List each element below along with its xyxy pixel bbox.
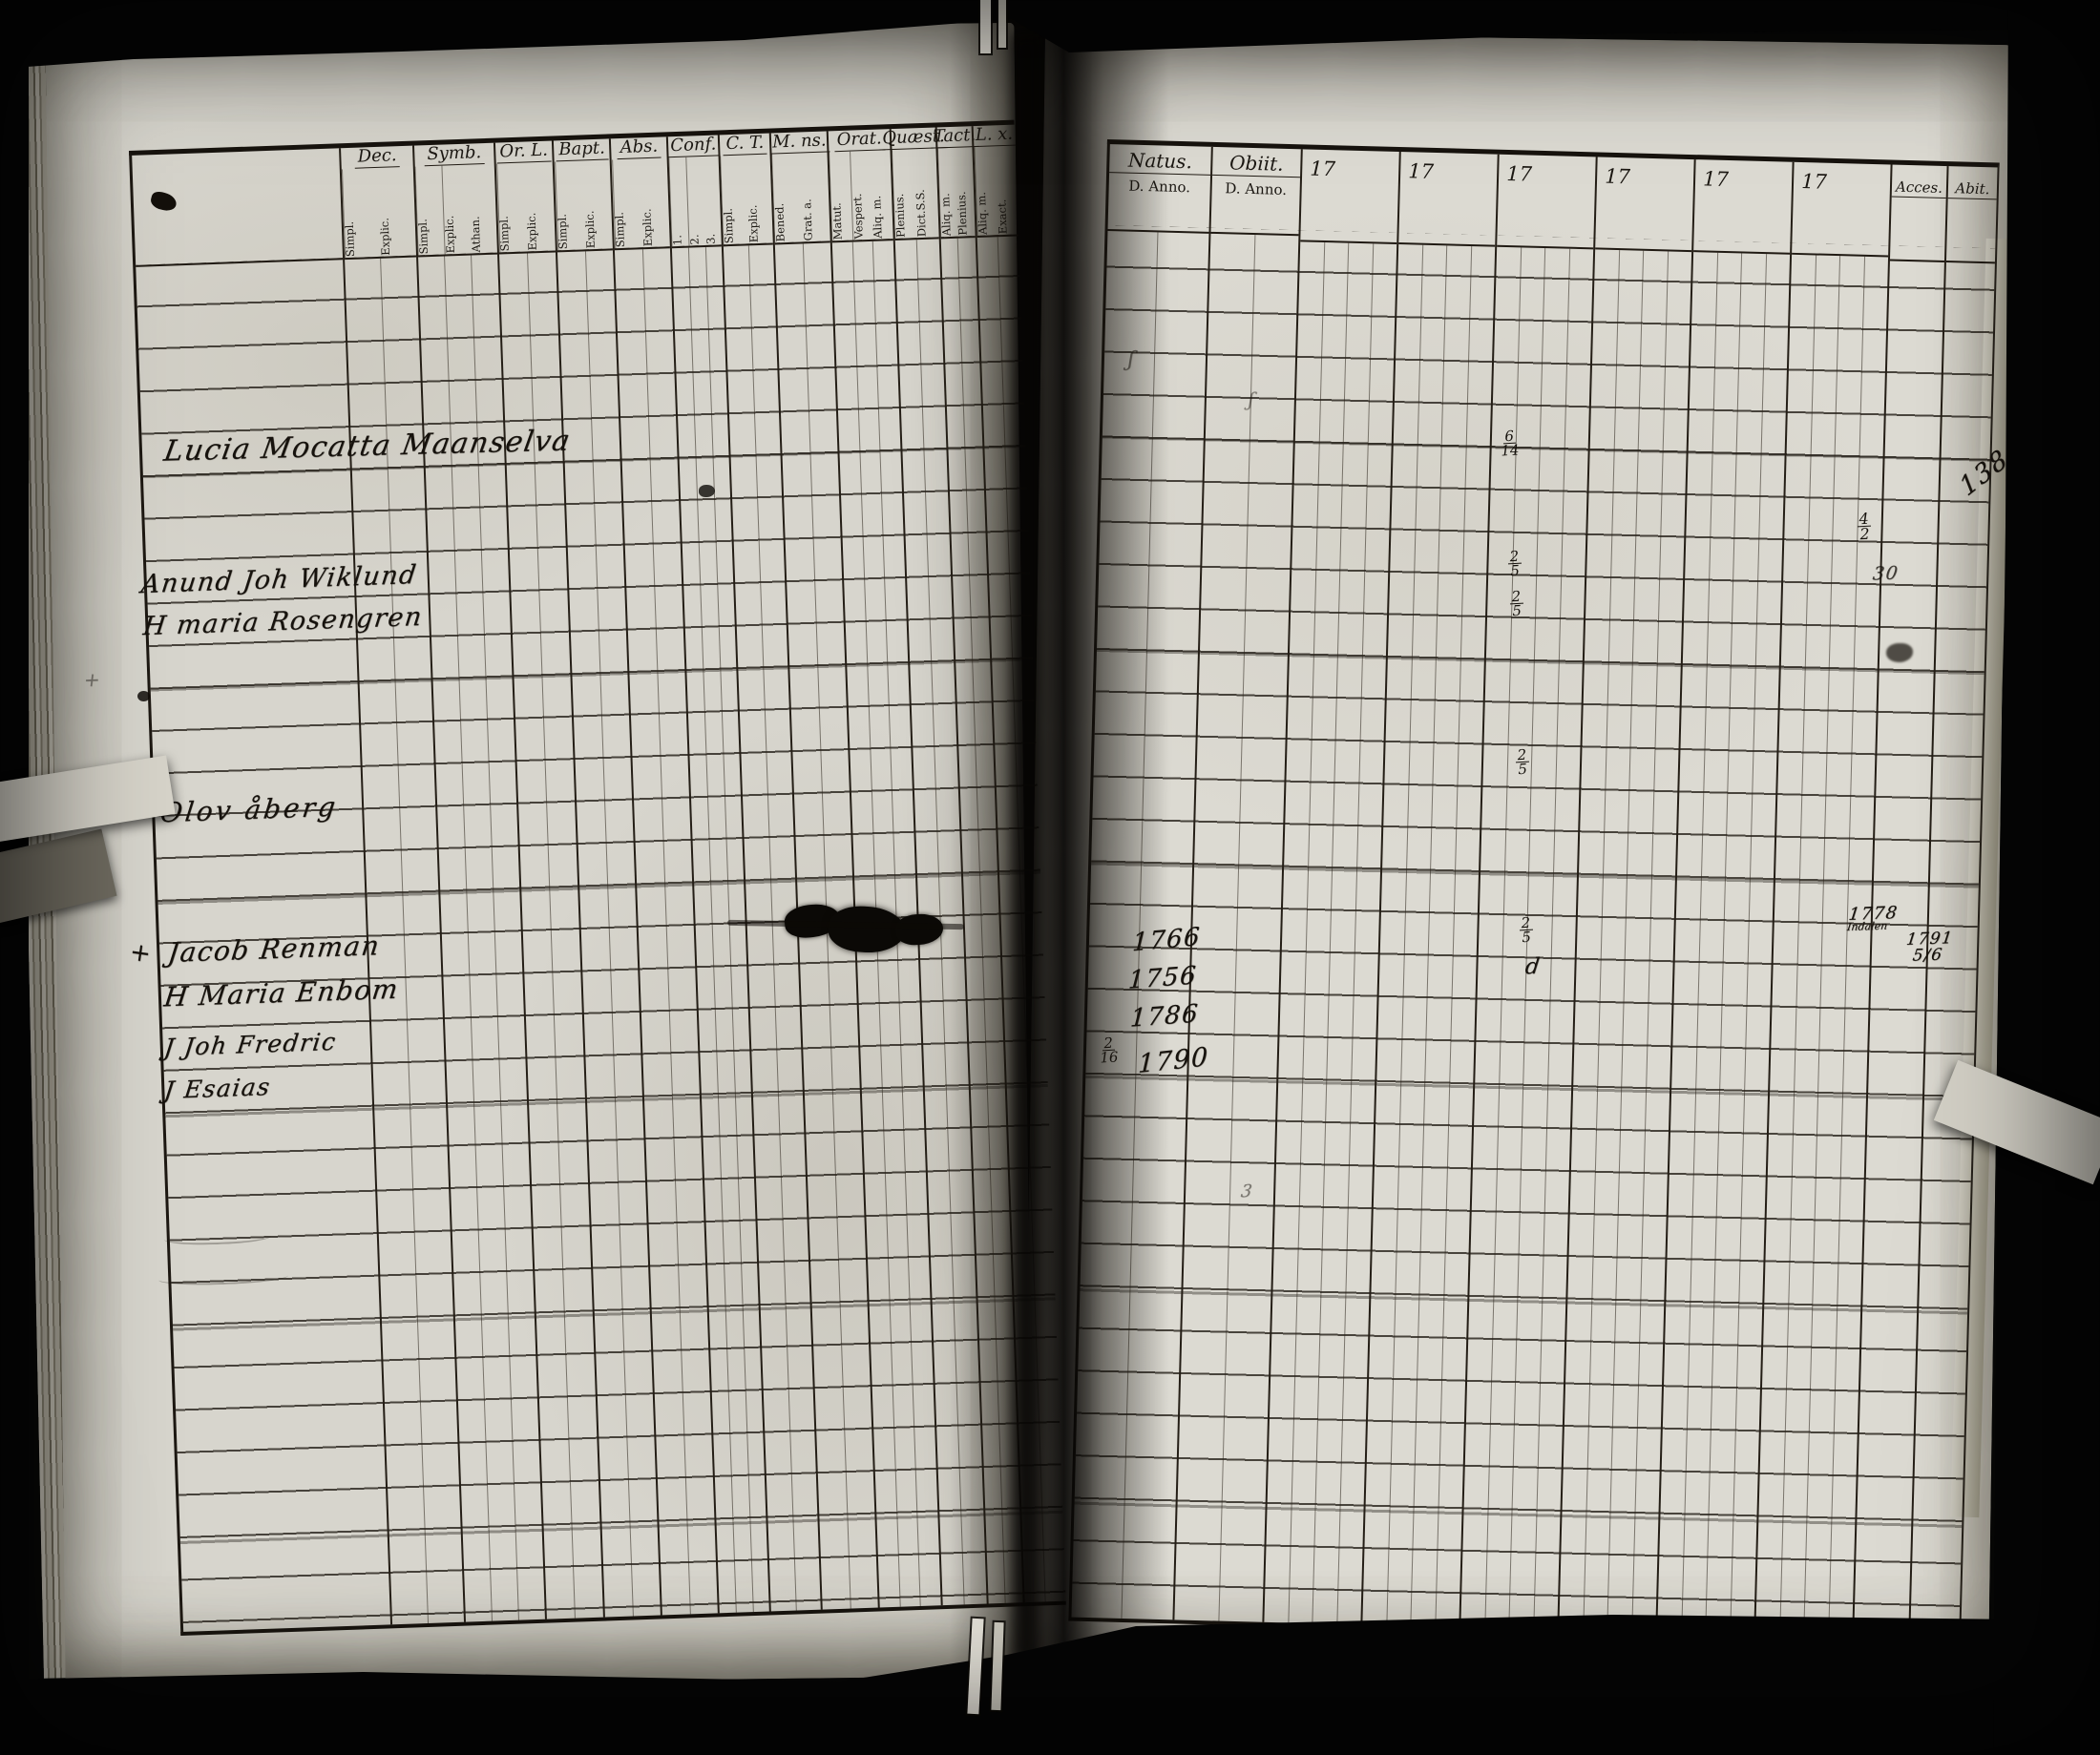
year-prefix: 17: [1801, 172, 1827, 193]
catechism-table: Dec. Simpl. Explic. Symb. Simpl. Explic.…: [129, 120, 1066, 1636]
margin-cross-mark: +: [83, 668, 103, 692]
date-mark: d: [1523, 954, 1542, 980]
year-prefix: 17: [1310, 159, 1335, 180]
column-label: Bapt.: [556, 138, 608, 161]
entry-name: Olov åberg: [158, 791, 340, 829]
fraction-denominator: 5: [1510, 564, 1520, 578]
subcolumn-label: Aliq. m.: [871, 150, 893, 240]
ink-blot: [137, 691, 150, 701]
book-photo: Dec. Simpl. Explic. Symb. Simpl. Explic.…: [0, 0, 2100, 1755]
natus-day-fraction: 2 16: [1099, 1036, 1119, 1065]
records-table: Natus. D. Anno. Obiit. D. Anno. 17 17: [1068, 139, 1999, 1644]
subcolumn-label: Simpl.: [342, 168, 381, 258]
abiit-note: 1791 5/6: [1903, 930, 1954, 965]
subcolumn-label: Explic.: [378, 166, 416, 256]
column-label: Or. L.: [496, 141, 551, 164]
year-prefix: 17: [1703, 169, 1729, 190]
abiit-label: Abit.: [1948, 179, 1998, 199]
natus-year: 1786: [1129, 999, 1200, 1033]
natus-year: 1756: [1127, 961, 1198, 994]
natus-year: 1766: [1131, 923, 1201, 958]
binder-prong-top: [980, 0, 991, 53]
fraction-denominator: 2: [1859, 527, 1870, 542]
subcolumn-label: 3.: [703, 156, 722, 245]
fraction-denominator: 6: [1930, 945, 1944, 965]
column-label: M. ns.: [769, 131, 829, 154]
subcolumn-label: Explic.: [525, 161, 556, 251]
fraction-denominator: 5: [1518, 763, 1527, 777]
entry-name: J Esaias: [162, 1073, 272, 1104]
date-mark: 6 14: [1500, 429, 1520, 458]
year-blank-line: [1410, 181, 1412, 242]
year-blank-line: [1508, 184, 1510, 245]
binder-prong-top: [998, 0, 1006, 48]
d-anno-label: D. Anno.: [1109, 177, 1210, 197]
subcolumn-label: Simpl.: [555, 160, 586, 250]
margin-number: 3: [1240, 1181, 1255, 1202]
fraction-denominator: 5: [1512, 604, 1522, 618]
column-label: Abs.: [617, 137, 661, 159]
column-label: Symb.: [424, 143, 485, 166]
fraction-denominator: 14: [1501, 444, 1520, 458]
year-blank-line: [1606, 187, 1608, 248]
fraction-numerator: 5: [1911, 946, 1925, 966]
date-mark: 2 5: [1515, 748, 1529, 777]
subcolumn-label: Simpl.: [721, 155, 749, 244]
photo-right-edge: [1993, 0, 2100, 1755]
subcolumn-label: Athan.: [469, 164, 497, 254]
year-blank-line: [1803, 192, 1805, 253]
subcolumn-label: Explic.: [745, 154, 773, 243]
year-blank-line: [1705, 189, 1707, 250]
subcolumn-label: Explic.: [582, 159, 613, 249]
year-prefix: 17: [1506, 164, 1532, 185]
natus-label: Natus.: [1109, 148, 1211, 176]
subcolumn-label: Simpl.: [495, 162, 528, 252]
year-prefix: 17: [1605, 167, 1630, 188]
fraction-denominator: 5: [1522, 930, 1531, 945]
year-blank-line: [1312, 179, 1313, 240]
column-label: Dec.: [354, 146, 400, 169]
book-spine: [1012, 34, 1040, 1662]
subcolumn-label: Simpl.: [612, 158, 643, 248]
margin-number: 30: [1872, 562, 1900, 584]
obiit-label: Obiit.: [1212, 151, 1301, 178]
subcolumn-label: Grat. a.: [800, 152, 830, 241]
column-label: Conf.: [667, 135, 720, 157]
subcolumn-label: Simpl.: [415, 165, 445, 255]
date-mark: 2 5: [1507, 550, 1522, 578]
subcolumn-label: Dict.S.S.: [914, 148, 939, 238]
subcolumn-label: Explic.: [640, 157, 670, 247]
column-label: L. x.: [972, 125, 1016, 147]
acces-note: 1778 Indalen: [1846, 906, 1899, 932]
margin-cross-mark: +: [128, 938, 154, 970]
subcolumn-label: Matut.: [829, 152, 853, 241]
column-label: C. T.: [723, 134, 766, 156]
date-mark: 2 5: [1509, 590, 1523, 618]
date-mark: 2 5: [1519, 916, 1533, 945]
column-label: Orat.: [833, 129, 885, 152]
d-anno-label: D. Anno.: [1211, 179, 1300, 198]
subcolumn-label: Bened.: [772, 153, 804, 242]
margin-fraction-mark: 4 2: [1857, 512, 1872, 542]
subcolumn-label: Explic.: [442, 164, 472, 254]
acces-label: Acces.: [1892, 178, 1946, 198]
fraction-denominator: 16: [1100, 1051, 1119, 1065]
year-prefix: 17: [1408, 161, 1434, 182]
subcolumn-label: Aliq. m.: [974, 146, 997, 236]
